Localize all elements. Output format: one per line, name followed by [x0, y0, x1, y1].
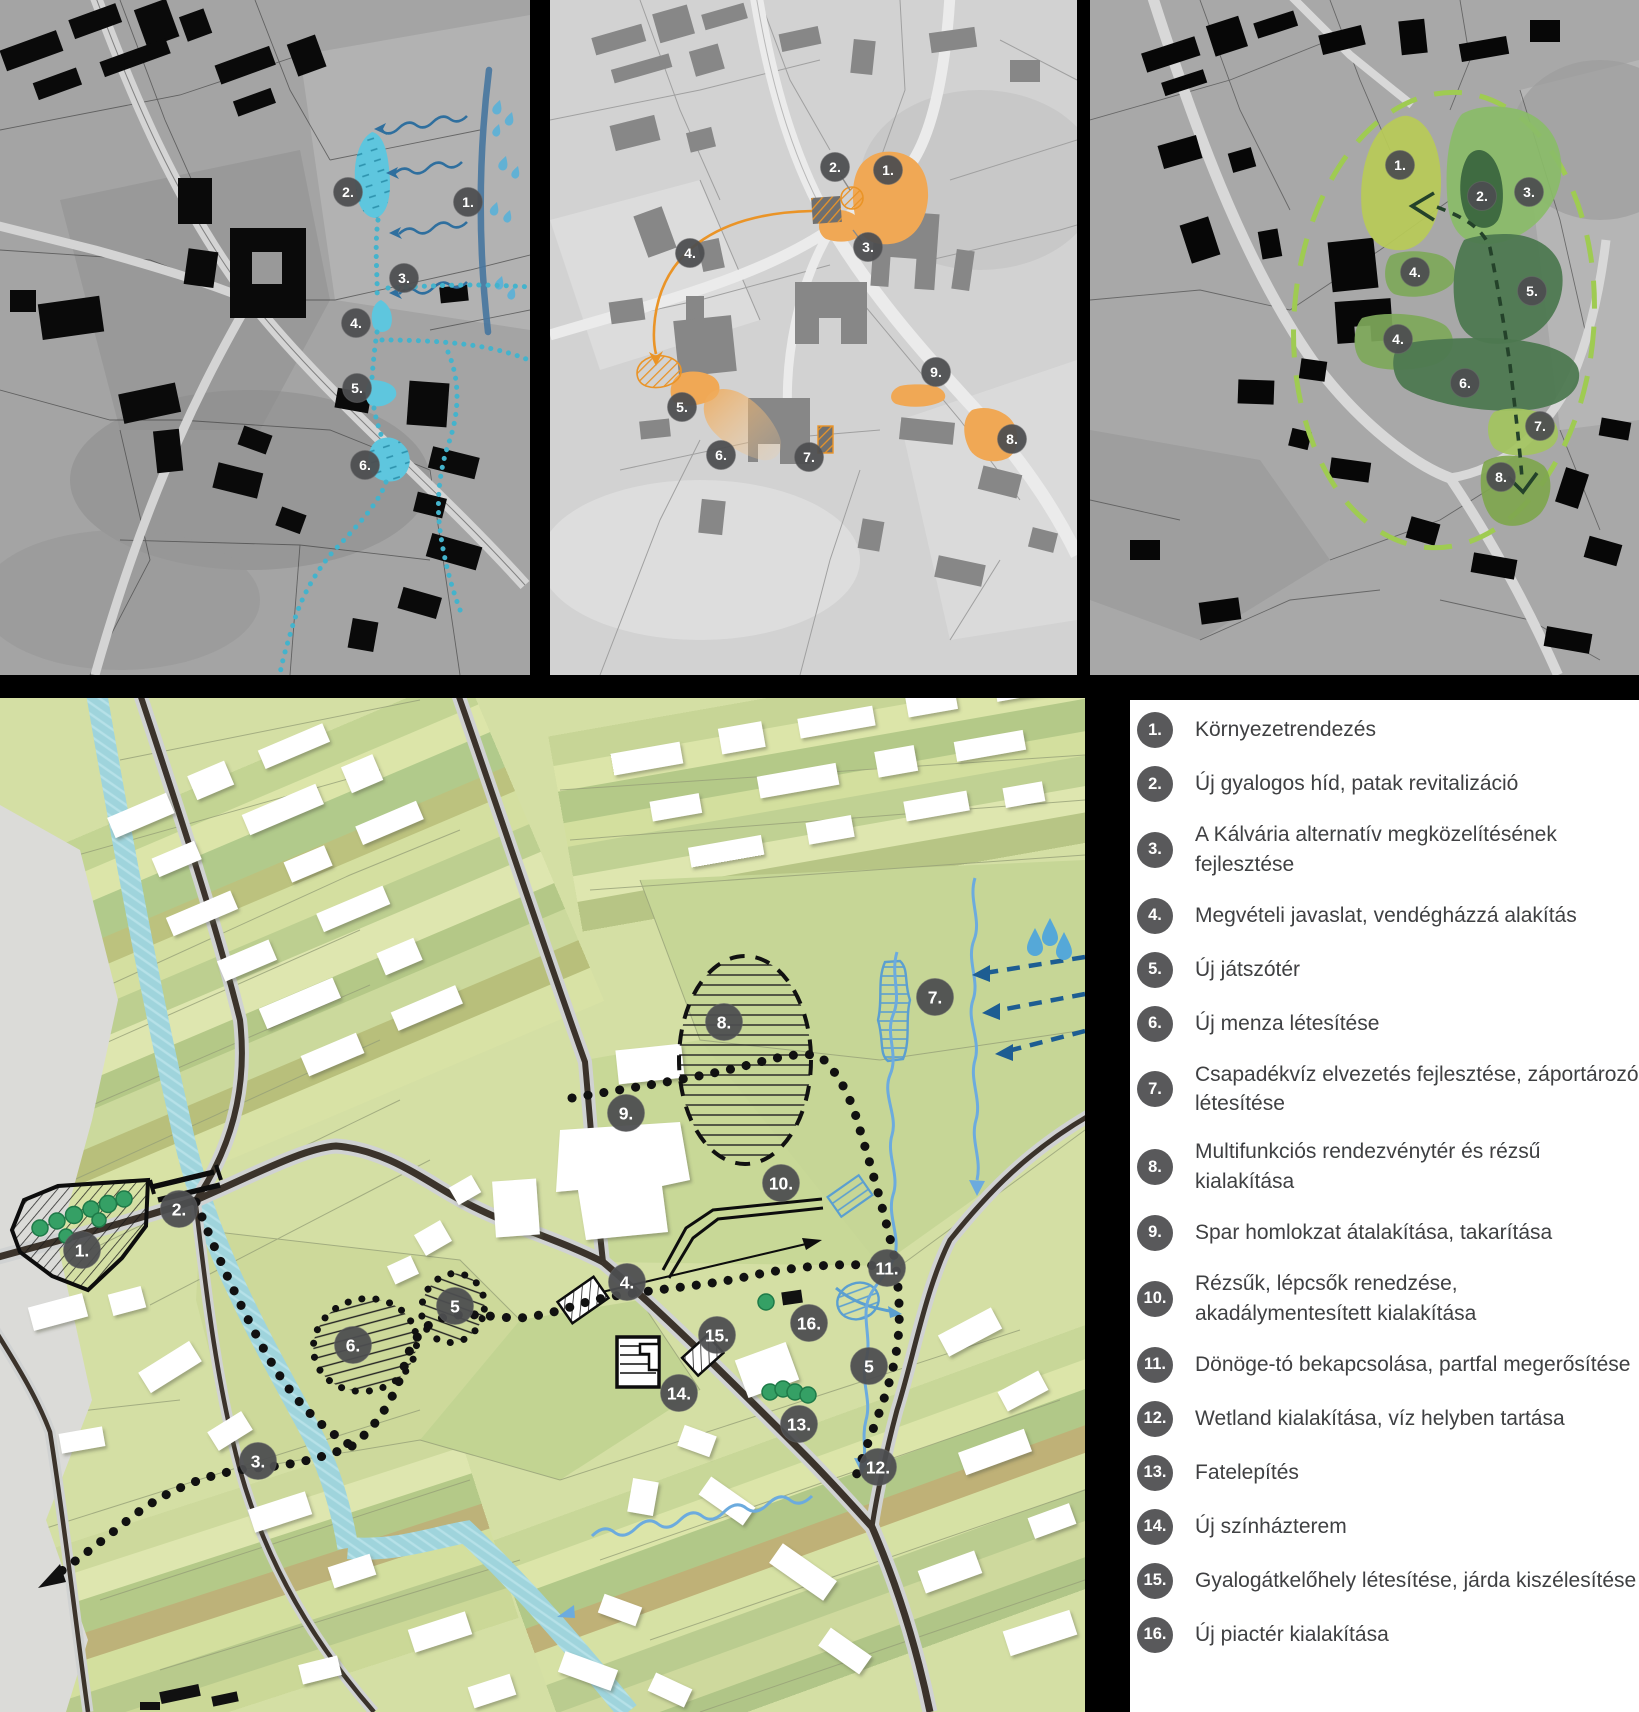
svg-text:8.: 8.	[717, 1012, 732, 1032]
map-marker-5: 5.	[1518, 277, 1547, 306]
legend-item: 3.A Kálvária alternatív megközelítésének…	[1137, 820, 1639, 880]
legend-item-number: 7.	[1137, 1071, 1173, 1107]
map-marker-8: 8.	[1487, 463, 1516, 492]
legend-item-number: 2.	[1137, 766, 1173, 802]
svg-text:4.: 4.	[1392, 331, 1404, 347]
map-marker-2: 2.	[334, 178, 363, 207]
svg-text:4.: 4.	[350, 315, 362, 331]
legend-item-number: 12.	[1137, 1401, 1173, 1437]
svg-text:7.: 7.	[1534, 418, 1546, 434]
svg-text:10.: 10.	[769, 1173, 793, 1193]
svg-text:3.: 3.	[1523, 184, 1535, 200]
legend-item-label: Megvételi javaslat, vendégházzá alakítás	[1195, 901, 1577, 931]
legend-item-number: 14.	[1137, 1509, 1173, 1545]
svg-text:2.: 2.	[1476, 188, 1488, 204]
legend-item: 10.Rézsűk, lépcsők renedzése, akadálymen…	[1137, 1269, 1639, 1329]
map-marker-4: 4.	[342, 309, 371, 338]
legend-item-number: 8.	[1137, 1149, 1173, 1185]
svg-text:7.: 7.	[803, 449, 815, 465]
svg-text:12.: 12.	[866, 1457, 890, 1477]
map-marker-1: 1.	[1386, 151, 1415, 180]
svg-text:1.: 1.	[1394, 157, 1406, 173]
svg-text:3.: 3.	[398, 270, 410, 286]
map-marker-4: 4.	[609, 1264, 646, 1301]
hatched-square	[811, 196, 842, 224]
map-marker-1: 1.	[454, 188, 483, 217]
svg-text:2.: 2.	[829, 159, 841, 175]
legend-item-label: Multifunkciós rendezvénytér és rézsű kia…	[1195, 1137, 1639, 1197]
legend-item-label: Új gyalogos híd, patak revitalizáció	[1195, 769, 1518, 799]
map-marker-12: 12.	[860, 1449, 897, 1486]
legend-item-label: Környezetrendezés	[1195, 715, 1376, 745]
map-marker-3: 3.	[1515, 178, 1544, 207]
map-marker-1: 1.	[64, 1232, 101, 1269]
map-marker-7: 7.	[917, 979, 954, 1016]
legend-item-label: Csapadékvíz elvezetés fejlesztése, zápor…	[1195, 1060, 1639, 1120]
legend-item: 13.Fatelepítés	[1137, 1455, 1639, 1491]
svg-text:5.: 5.	[1526, 283, 1538, 299]
map-marker-2: 2.	[821, 153, 850, 182]
masterplan-map: 1.2.3.4.556.7.8.9.10.11.12.13.14.15.16.	[0, 698, 1085, 1712]
legend-item: 4.Megvételi javaslat, vendégházzá alakít…	[1137, 898, 1639, 934]
analysis-map-water: 1.2.3.4.5.6.	[0, 0, 530, 675]
legend-item-label: Rézsűk, lépcsők renedzése, akadálymentes…	[1195, 1269, 1639, 1329]
svg-text:14.: 14.	[667, 1383, 691, 1403]
legend-item-number: 5.	[1137, 952, 1173, 988]
map-marker-11: 11.	[869, 1250, 906, 1287]
map-marker-3: 3.	[390, 264, 419, 293]
svg-text:3.: 3.	[862, 239, 874, 255]
legend-item-number: 10.	[1137, 1281, 1173, 1317]
svg-text:1.: 1.	[75, 1240, 90, 1260]
legend-item: 2.Új gyalogos híd, patak revitalizáció	[1137, 766, 1639, 802]
legend-item-number: 3.	[1137, 832, 1173, 868]
map-marker-5: 5.	[668, 393, 697, 422]
svg-text:16.: 16.	[797, 1313, 821, 1333]
legend-panel: 1.Környezetrendezés2.Új gyalogos híd, pa…	[1130, 700, 1639, 1712]
map-marker-5: 5	[437, 1288, 474, 1325]
legend-item: 1.Környezetrendezés	[1137, 712, 1639, 748]
svg-text:13.: 13.	[787, 1414, 811, 1434]
event-area-8	[679, 956, 811, 1164]
svg-text:6.: 6.	[359, 457, 371, 473]
legend-item: 11.Dönöge-tó bekapcsolása, partfal meger…	[1137, 1347, 1639, 1383]
legend-item-number: 4.	[1137, 898, 1173, 934]
map-marker-7: 7.	[795, 443, 824, 472]
legend-item: 16.Új piactér kialakítása	[1137, 1617, 1639, 1653]
map-marker-10: 10.	[763, 1165, 800, 1202]
legend-item-label: Wetland kialakítása, víz helyben tartása	[1195, 1404, 1565, 1434]
legend-item-number: 13.	[1137, 1455, 1173, 1491]
svg-text:3.: 3.	[251, 1451, 266, 1471]
svg-text:9.: 9.	[930, 364, 942, 380]
map-marker-3: 3.	[240, 1443, 277, 1480]
legend-item: 14.Új színházterem	[1137, 1509, 1639, 1545]
legend-item-number: 9.	[1137, 1215, 1173, 1251]
relocation-target	[637, 356, 681, 388]
map-marker-9: 9.	[608, 1095, 645, 1132]
legend-item-number: 1.	[1137, 712, 1173, 748]
legend-item: 12.Wetland kialakítása, víz helyben tart…	[1137, 1401, 1639, 1437]
map-marker-9: 9.	[922, 358, 951, 387]
svg-text:8.: 8.	[1495, 469, 1507, 485]
map-marker-6: 6.	[335, 1327, 372, 1364]
svg-text:4.: 4.	[620, 1272, 635, 1292]
legend-item-label: Dönöge-tó bekapcsolása, partfal megerősí…	[1195, 1350, 1630, 1380]
hatched-spot	[841, 187, 863, 209]
legend-item-label: Új menza létesítése	[1195, 1009, 1379, 1039]
legend-item-number: 15.	[1137, 1563, 1173, 1599]
svg-text:2.: 2.	[172, 1199, 187, 1219]
legend-item-label: Új piactér kialakítása	[1195, 1620, 1389, 1650]
area-9	[891, 384, 945, 406]
map-marker-5: 5	[851, 1348, 888, 1385]
masterplan-board: 1.2.3.4.5.6.	[0, 0, 1639, 1712]
legend-item-number: 6.	[1137, 1006, 1173, 1042]
legend-item: 15.Gyalogátkelőhely létesítése, járda ki…	[1137, 1563, 1639, 1599]
map-marker-6: 6.	[351, 451, 380, 480]
svg-text:7.: 7.	[928, 987, 943, 1007]
svg-text:5.: 5.	[676, 399, 688, 415]
analysis-map-green: 1.2.3.4.5.4.6.7.8.	[1090, 0, 1639, 675]
map-marker-6: 6.	[707, 441, 736, 470]
map-marker-6: 6.	[1451, 369, 1480, 398]
svg-text:1.: 1.	[882, 162, 894, 178]
legend-item: 9.Spar homlokzat átalakítása, takarítása	[1137, 1215, 1639, 1251]
legend-item-label: Fatelepítés	[1195, 1458, 1299, 1488]
map-marker-1: 1.	[874, 156, 903, 185]
map-marker-2: 2.	[1468, 182, 1497, 211]
map-marker-4: 4.	[1401, 258, 1430, 287]
legend-item-number: 11.	[1137, 1347, 1173, 1383]
svg-text:6.: 6.	[715, 447, 727, 463]
map-marker-14: 14.	[661, 1375, 698, 1412]
legend-item-label: A Kálvária alternatív megközelítésének f…	[1195, 820, 1639, 880]
svg-text:4.: 4.	[1409, 264, 1421, 280]
map-marker-13: 13.	[781, 1406, 818, 1443]
svg-text:5: 5	[864, 1356, 874, 1376]
svg-text:5.: 5.	[351, 380, 363, 396]
svg-text:15.: 15.	[705, 1325, 729, 1345]
legend-item-label: Új játszótér	[1195, 955, 1300, 985]
svg-text:11.: 11.	[875, 1258, 898, 1278]
legend-item: 5.Új játszótér	[1137, 952, 1639, 988]
legend-item: 6.Új menza létesítése	[1137, 1006, 1639, 1042]
legend-item-number: 16.	[1137, 1617, 1173, 1653]
svg-text:5: 5	[450, 1296, 460, 1316]
map-marker-8: 8.	[706, 1004, 743, 1041]
legend-item: 8.Multifunkciós rendezvénytér és rézsű k…	[1137, 1137, 1639, 1197]
map-marker-15: 15.	[699, 1317, 736, 1354]
legend-item-label: Új színházterem	[1195, 1512, 1347, 1542]
map-marker-8: 8.	[998, 425, 1027, 454]
map-marker-16: 16.	[791, 1305, 828, 1342]
analysis-map-buildings: 1.2.3.4.5.6.7.8.9.	[550, 0, 1077, 675]
svg-text:8.: 8.	[1006, 431, 1018, 447]
map-marker-4: 4.	[676, 239, 705, 268]
legend-item-label: Gyalogátkelőhely létesítése, járda kiszé…	[1195, 1566, 1636, 1596]
map-marker-5: 5.	[343, 374, 372, 403]
map-marker-3: 3.	[854, 233, 883, 262]
map-marker-7: 7.	[1526, 412, 1555, 441]
svg-text:1.: 1.	[462, 194, 474, 210]
svg-text:4.: 4.	[684, 245, 696, 261]
svg-text:6.: 6.	[1459, 375, 1471, 391]
svg-text:9.: 9.	[619, 1103, 634, 1123]
legend-item: 7.Csapadékvíz elvezetés fejlesztése, záp…	[1137, 1060, 1639, 1120]
legend-item-label: Spar homlokzat átalakítása, takarítása	[1195, 1218, 1552, 1248]
map-marker-2: 2.	[161, 1191, 198, 1228]
svg-text:2.: 2.	[342, 184, 354, 200]
svg-text:6.: 6.	[346, 1335, 361, 1355]
map-marker-4: 4.	[1384, 325, 1413, 354]
